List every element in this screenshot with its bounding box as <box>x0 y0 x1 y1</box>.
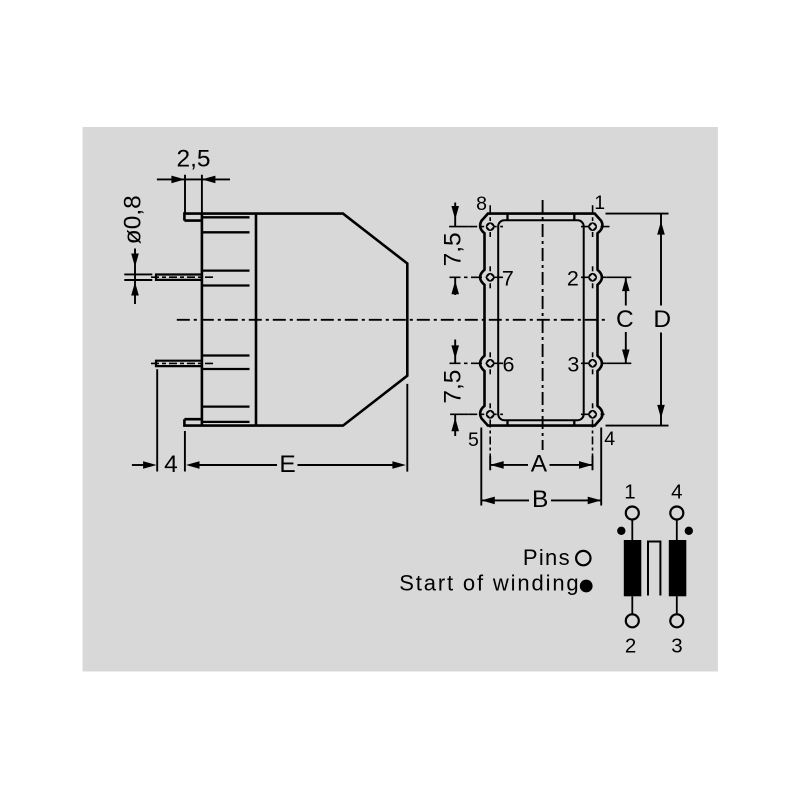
svg-text:Start of winding: Start of winding <box>399 570 580 595</box>
svg-text:1: 1 <box>624 481 635 504</box>
svg-text:D: D <box>653 306 671 333</box>
svg-text:7,5: 7,5 <box>439 232 466 266</box>
svg-text:4: 4 <box>671 481 682 504</box>
svg-text:Pins: Pins <box>523 545 571 570</box>
svg-text:A: A <box>531 451 548 478</box>
svg-text:4: 4 <box>164 451 178 478</box>
svg-text:3: 3 <box>567 352 579 376</box>
svg-text:6: 6 <box>503 352 515 376</box>
svg-text:C: C <box>616 306 634 333</box>
svg-text:2,5: 2,5 <box>176 146 210 173</box>
svg-text:2: 2 <box>625 635 636 658</box>
svg-text:B: B <box>532 486 548 513</box>
svg-text:4: 4 <box>604 428 615 450</box>
svg-text:2: 2 <box>567 267 579 291</box>
svg-text:3: 3 <box>671 635 682 658</box>
svg-text:8: 8 <box>476 193 487 215</box>
svg-text:5: 5 <box>468 429 479 451</box>
svg-text:7: 7 <box>502 267 514 291</box>
svg-text:7,5: 7,5 <box>439 370 466 404</box>
svg-text:ø0,8: ø0,8 <box>120 195 147 244</box>
svg-text:E: E <box>279 451 295 478</box>
svg-text:1: 1 <box>594 192 605 214</box>
